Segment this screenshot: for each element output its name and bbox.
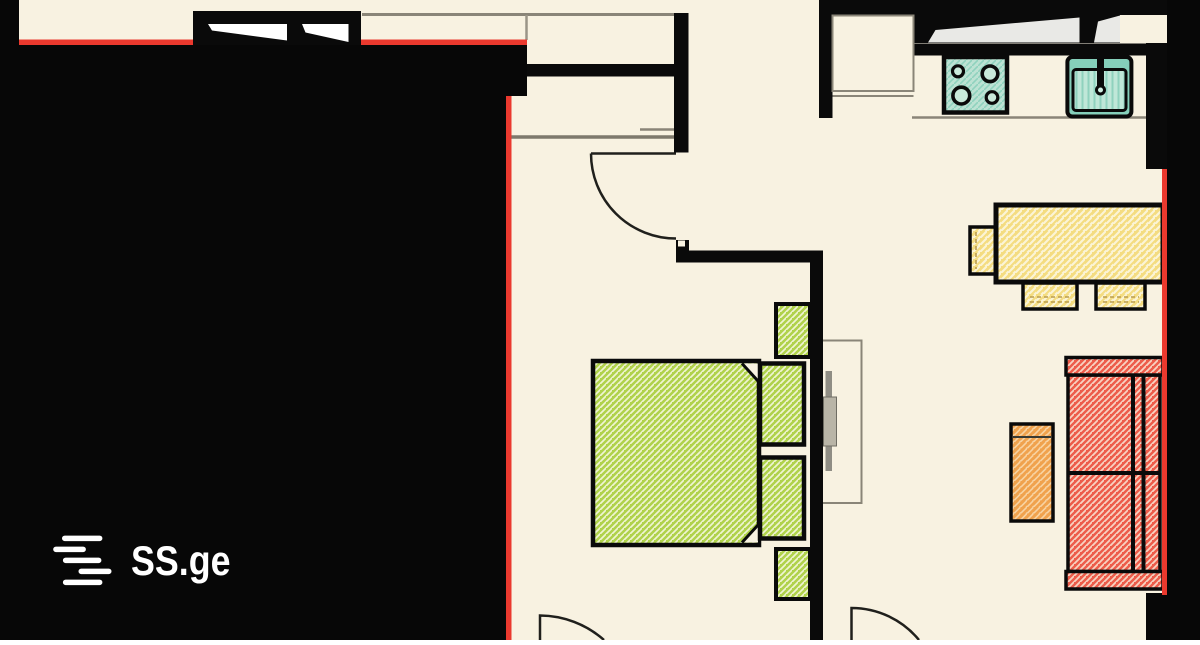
- svg-text:SS.ge: SS.ge: [131, 537, 231, 584]
